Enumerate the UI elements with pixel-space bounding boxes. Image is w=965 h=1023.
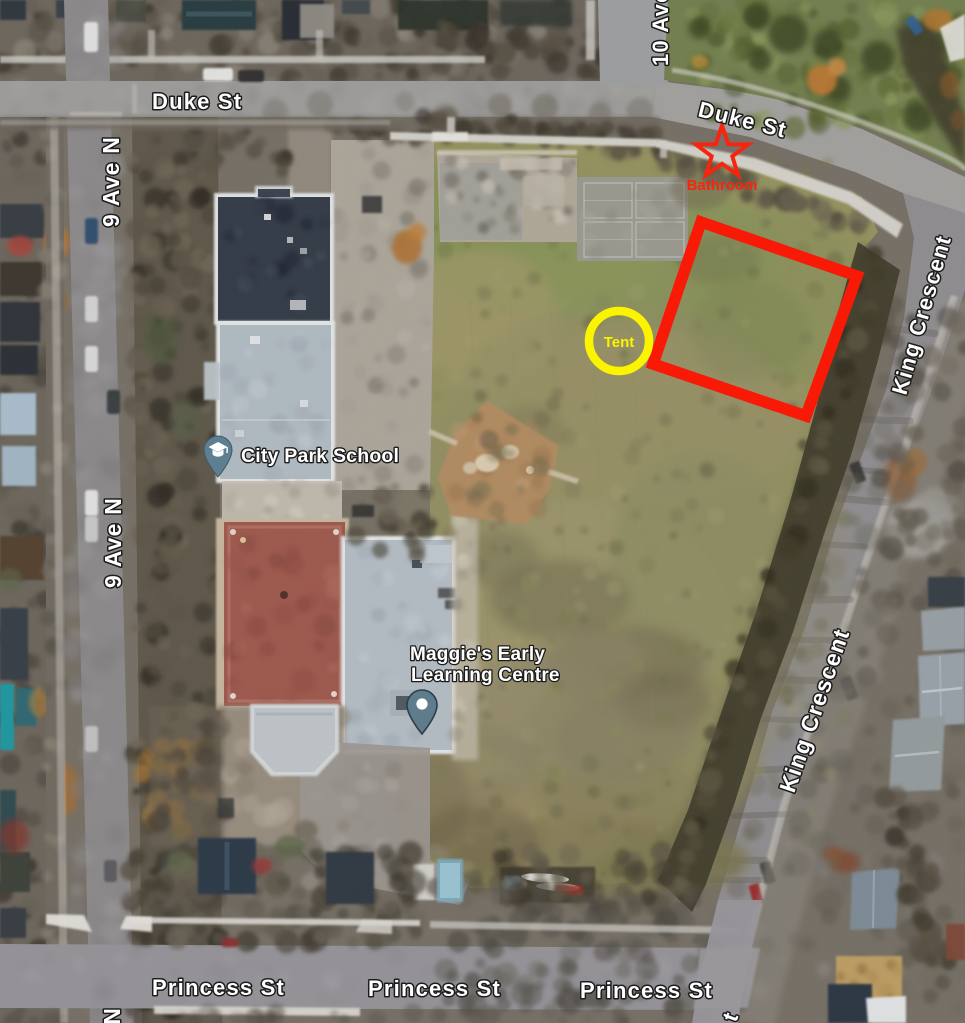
svg-text:Princess St: Princess St [368,976,501,1001]
svg-text:Duke St: Duke St [152,89,242,114]
svg-text:9 Ave N: 9 Ave N [100,497,126,588]
svg-text:Princess St: Princess St [152,975,285,1000]
svg-text:9 Ave N: 9 Ave N [99,1007,125,1023]
svg-text:10 Ave: 10 Ave [648,0,673,66]
svg-text:Tent: Tent [604,334,635,351]
svg-text:Maggie's Early: Maggie's Early [410,644,545,665]
svg-text:Bathroom: Bathroom [687,177,758,194]
svg-text:City Park School: City Park School [241,445,399,467]
svg-text:9 Ave N: 9 Ave N [98,136,124,227]
svg-text:Princess St: Princess St [580,978,713,1003]
svg-text:Learning Centre: Learning Centre [411,665,560,686]
